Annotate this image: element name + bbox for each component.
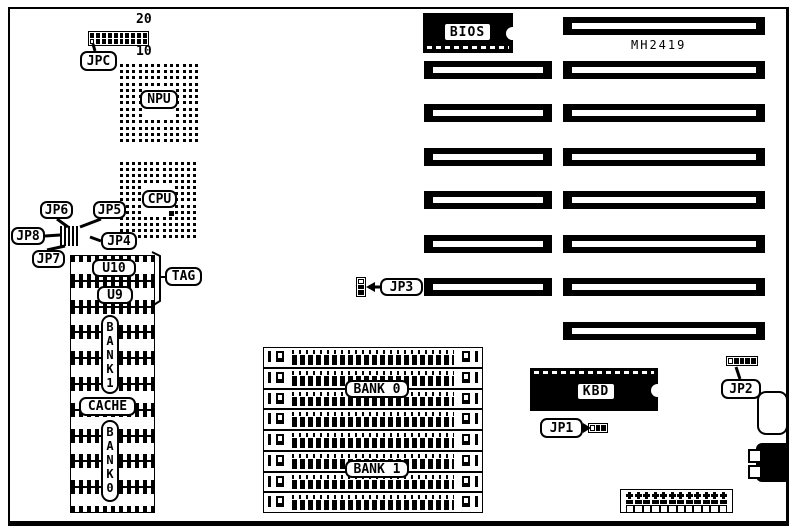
bios-label: BIOS bbox=[444, 23, 491, 41]
pin bbox=[120, 39, 124, 44]
socket-pin bbox=[195, 83, 198, 86]
socket-pin bbox=[163, 235, 166, 238]
repeated-element bbox=[263, 347, 483, 368]
socket-pin bbox=[183, 83, 186, 86]
socket-pin bbox=[181, 174, 184, 177]
socket-pin bbox=[132, 139, 135, 142]
repeated-element bbox=[711, 492, 718, 499]
socket-pin bbox=[189, 76, 192, 79]
jp3-callout: JP3 bbox=[380, 278, 423, 296]
socket-pin bbox=[126, 223, 129, 226]
repeated-element bbox=[677, 505, 685, 513]
socket-pin bbox=[183, 127, 186, 130]
socket-pin bbox=[169, 223, 172, 226]
socket-pin bbox=[164, 120, 167, 123]
socket-pin bbox=[144, 168, 147, 171]
power-pin-row-square bbox=[626, 505, 727, 513]
jpc-pin10-label: 10 bbox=[136, 45, 152, 58]
socket-pin bbox=[163, 174, 166, 177]
socket-pin bbox=[132, 83, 135, 86]
socket-pin bbox=[175, 235, 178, 238]
socket-pin bbox=[181, 198, 184, 201]
socket-pin bbox=[126, 120, 129, 123]
socket-pin bbox=[120, 101, 123, 104]
socket-pin bbox=[132, 133, 135, 136]
socket-pin bbox=[138, 162, 141, 165]
socket-pin bbox=[120, 162, 123, 165]
repeated-element bbox=[263, 492, 483, 513]
socket-pin bbox=[189, 114, 192, 117]
power-connector bbox=[620, 489, 733, 513]
socket-pin bbox=[170, 70, 173, 73]
pin bbox=[60, 226, 62, 230]
pin bbox=[601, 425, 606, 431]
socket-pin bbox=[193, 229, 196, 232]
repeated-element bbox=[669, 500, 676, 504]
socket-pin bbox=[144, 235, 147, 238]
pin bbox=[68, 238, 70, 242]
socket-pin bbox=[144, 229, 147, 232]
socket-pin bbox=[156, 235, 159, 238]
socket-pin bbox=[120, 192, 123, 195]
jp2-jumper bbox=[726, 356, 758, 366]
socket-pin bbox=[163, 229, 166, 232]
socket-pin bbox=[150, 168, 153, 171]
repeated-element bbox=[424, 235, 552, 253]
pin bbox=[68, 226, 70, 230]
repeated-element bbox=[424, 61, 552, 79]
socket-pin bbox=[138, 205, 141, 208]
socket-pin bbox=[183, 95, 186, 98]
jumper-strip bbox=[72, 226, 74, 246]
socket-pin bbox=[193, 186, 196, 189]
socket-pin bbox=[120, 186, 123, 189]
socket-pin bbox=[187, 198, 190, 201]
repeated-element bbox=[424, 278, 552, 296]
socket-pin bbox=[144, 180, 147, 183]
cache-label: CACHE bbox=[79, 397, 136, 416]
socket-pin bbox=[183, 64, 186, 67]
socket-pin bbox=[169, 174, 172, 177]
socket-pin bbox=[132, 127, 135, 130]
repeated-element bbox=[651, 505, 659, 513]
repeated-element bbox=[563, 191, 765, 209]
socket-pin bbox=[183, 120, 186, 123]
repeated-element bbox=[677, 500, 684, 504]
socket-pin bbox=[157, 70, 160, 73]
pin bbox=[102, 33, 106, 38]
pin bbox=[76, 231, 78, 237]
socket-pin bbox=[156, 217, 159, 220]
socket-pin bbox=[183, 108, 186, 111]
socket-pin bbox=[126, 133, 129, 136]
jp3-jumper bbox=[356, 277, 366, 297]
simm-bank0-label: BANK 0 bbox=[345, 380, 409, 398]
socket-pin bbox=[126, 198, 129, 201]
socket-pin bbox=[120, 168, 123, 171]
socket-pin bbox=[163, 168, 166, 171]
socket-pin bbox=[157, 76, 160, 79]
socket-pin bbox=[145, 83, 148, 86]
socket-pin bbox=[175, 211, 178, 214]
socket-pin bbox=[150, 217, 153, 220]
repeated-element bbox=[563, 278, 765, 296]
socket-pin bbox=[120, 120, 123, 123]
socket-pin bbox=[176, 89, 179, 92]
socket-pin bbox=[126, 101, 129, 104]
kbd-notch bbox=[651, 384, 664, 397]
pin bbox=[64, 231, 66, 237]
repeated-element bbox=[693, 505, 701, 513]
socket-pin bbox=[150, 162, 153, 165]
power-pin-row-dash bbox=[626, 500, 727, 504]
cpu-label: CPU bbox=[142, 190, 177, 208]
jumper-strip bbox=[76, 226, 78, 246]
socket-pin bbox=[176, 114, 179, 117]
socket-pin bbox=[126, 83, 129, 86]
pin bbox=[76, 226, 78, 230]
repeated-element bbox=[720, 500, 727, 504]
socket-pin bbox=[189, 120, 192, 123]
repeated-element bbox=[660, 492, 667, 499]
socket-pin bbox=[176, 127, 179, 130]
jp2-callout: JP2 bbox=[721, 379, 761, 399]
socket-pin bbox=[150, 229, 153, 232]
jp7-callout: JP7 bbox=[32, 250, 65, 268]
socket-pin bbox=[126, 180, 129, 183]
socket-pin bbox=[183, 101, 186, 104]
simm-bank1-label: BANK 1 bbox=[345, 460, 409, 478]
kbd-pins bbox=[534, 371, 654, 374]
socket-pin bbox=[187, 217, 190, 220]
socket-pin bbox=[164, 133, 167, 136]
socket-pin bbox=[175, 180, 178, 183]
socket-pin bbox=[151, 76, 154, 79]
socket-pin bbox=[181, 180, 184, 183]
pin bbox=[751, 358, 756, 364]
pin bbox=[72, 238, 74, 242]
socket-pin bbox=[181, 217, 184, 220]
pin bbox=[740, 358, 745, 364]
socket-pin bbox=[183, 70, 186, 73]
socket-pin bbox=[164, 64, 167, 67]
repeated-element bbox=[643, 500, 650, 504]
socket-pin bbox=[156, 168, 159, 171]
socket-pin bbox=[138, 235, 141, 238]
socket-pin bbox=[195, 70, 198, 73]
jumper-strip bbox=[68, 226, 70, 246]
socket-pin bbox=[195, 64, 198, 67]
socket-pin bbox=[169, 162, 172, 165]
socket-pin bbox=[120, 174, 123, 177]
socket-pin bbox=[181, 162, 184, 165]
socket-pin bbox=[170, 133, 173, 136]
socket-pin bbox=[145, 127, 148, 130]
socket-pin bbox=[139, 133, 142, 136]
repeated-element bbox=[424, 191, 552, 209]
socket-pin bbox=[126, 162, 129, 165]
pin bbox=[72, 226, 74, 230]
socket-pin bbox=[170, 120, 173, 123]
socket-pin bbox=[189, 108, 192, 111]
jpc-callout: JPC bbox=[80, 51, 117, 71]
socket-pin bbox=[175, 162, 178, 165]
socket-pin bbox=[126, 139, 129, 142]
pin bbox=[358, 285, 364, 290]
socket-pin bbox=[187, 211, 190, 214]
socket-pin bbox=[145, 64, 148, 67]
repeated-element bbox=[643, 505, 651, 513]
socket-pin bbox=[138, 198, 141, 201]
socket-pin bbox=[132, 223, 135, 226]
keyboard-connector-pin bbox=[748, 449, 762, 463]
socket-pin bbox=[138, 192, 141, 195]
socket-pin bbox=[126, 108, 129, 111]
socket-pin bbox=[120, 70, 123, 73]
socket-pin bbox=[120, 83, 123, 86]
repeated-element bbox=[703, 500, 710, 504]
socket-pin bbox=[126, 192, 129, 195]
socket-pin bbox=[181, 192, 184, 195]
pin bbox=[131, 33, 135, 38]
socket-pin bbox=[126, 64, 129, 67]
jp5-callout: JP5 bbox=[93, 201, 126, 219]
socket-pin bbox=[139, 114, 142, 117]
repeated-element bbox=[686, 500, 693, 504]
kbd-label: KBD bbox=[577, 383, 615, 400]
jpc-pin20-label: 20 bbox=[136, 13, 152, 26]
socket-pin bbox=[150, 174, 153, 177]
pin bbox=[102, 39, 106, 44]
repeated-element bbox=[563, 322, 765, 340]
socket-pin bbox=[145, 133, 148, 136]
socket-pin bbox=[126, 186, 129, 189]
simm-socket-bank bbox=[263, 347, 483, 513]
jp1-callout: JP1 bbox=[540, 418, 583, 438]
u9-label: U9 bbox=[97, 286, 133, 304]
repeated-element bbox=[424, 148, 552, 166]
socket-pin bbox=[187, 162, 190, 165]
socket-pin bbox=[132, 95, 135, 98]
pin bbox=[108, 39, 112, 44]
socket-pin bbox=[138, 180, 141, 183]
socket-pin bbox=[132, 186, 135, 189]
socket-pin bbox=[169, 180, 172, 183]
socket-pin bbox=[138, 217, 141, 220]
pin bbox=[358, 279, 364, 284]
socket-pin bbox=[176, 133, 179, 136]
socket-pin bbox=[132, 101, 135, 104]
pin bbox=[143, 33, 147, 38]
socket-pin bbox=[138, 229, 141, 232]
socket-pin bbox=[195, 101, 198, 104]
socket-pin bbox=[195, 120, 198, 123]
socket-pin bbox=[195, 108, 198, 111]
socket-pin bbox=[187, 229, 190, 232]
socket-pin bbox=[193, 223, 196, 226]
din-connector-outline bbox=[757, 391, 788, 435]
socket-pin bbox=[175, 168, 178, 171]
socket-pin bbox=[163, 217, 166, 220]
socket-pin bbox=[138, 186, 141, 189]
repeated-element bbox=[635, 500, 642, 504]
pin bbox=[76, 242, 78, 246]
power-pin-row-plus bbox=[626, 492, 727, 499]
bank1-cache-label: BANK 1 bbox=[101, 315, 119, 394]
socket-pin bbox=[139, 70, 142, 73]
socket-pin bbox=[132, 192, 135, 195]
socket-pin bbox=[195, 76, 198, 79]
socket-pin bbox=[120, 64, 123, 67]
socket-pin bbox=[151, 139, 154, 142]
socket-pin bbox=[126, 217, 129, 220]
socket-pin bbox=[132, 211, 135, 214]
board-model-label: MH2419 bbox=[631, 39, 686, 51]
socket-pin bbox=[175, 223, 178, 226]
socket-pin bbox=[120, 114, 123, 117]
pin bbox=[596, 425, 601, 431]
socket-pin bbox=[193, 174, 196, 177]
pin bbox=[60, 231, 62, 237]
jp8-callout: JP8 bbox=[11, 227, 45, 245]
socket-pin bbox=[126, 205, 129, 208]
socket-pin bbox=[132, 114, 135, 117]
socket-pin bbox=[175, 186, 178, 189]
jumper-block-jp4-jp8 bbox=[60, 226, 91, 246]
motherboard-diagram: 20 10 JPC NPU CPU JP6 JP5 JP8 JP4 JP7 U1… bbox=[0, 0, 794, 530]
socket-pin bbox=[132, 120, 135, 123]
socket-pin bbox=[126, 114, 129, 117]
repeated-element bbox=[635, 492, 642, 499]
socket-pin bbox=[138, 174, 141, 177]
socket-pin bbox=[157, 133, 160, 136]
pin bbox=[60, 238, 62, 242]
repeated-element bbox=[626, 500, 633, 504]
socket-pin bbox=[187, 168, 190, 171]
socket-pin bbox=[169, 168, 172, 171]
pin bbox=[96, 39, 100, 44]
socket-pin bbox=[132, 76, 135, 79]
pin bbox=[131, 39, 135, 44]
pin bbox=[90, 33, 94, 38]
jp6-callout: JP6 bbox=[40, 201, 73, 219]
pin bbox=[745, 358, 750, 364]
socket-pin bbox=[132, 89, 135, 92]
repeated-element bbox=[702, 505, 710, 513]
jp4-callout: JP4 bbox=[101, 232, 137, 250]
socket-pin bbox=[164, 139, 167, 142]
socket-pin bbox=[144, 223, 147, 226]
socket-pin bbox=[120, 127, 123, 130]
socket-pin bbox=[175, 229, 178, 232]
socket-pin bbox=[151, 127, 154, 130]
socket-pin bbox=[183, 76, 186, 79]
socket-pin bbox=[120, 139, 123, 142]
socket-pin bbox=[164, 127, 167, 130]
pin bbox=[72, 242, 74, 246]
repeated-element bbox=[668, 505, 676, 513]
repeated-element bbox=[563, 104, 765, 122]
pin bbox=[114, 39, 118, 44]
jp1-jumper bbox=[588, 423, 608, 433]
socket-pin bbox=[150, 235, 153, 238]
pin bbox=[120, 33, 124, 38]
socket-pin bbox=[144, 162, 147, 165]
socket-pin bbox=[120, 95, 123, 98]
socket-pin bbox=[189, 139, 192, 142]
socket-pin bbox=[157, 127, 160, 130]
bank0-cache-label: BANK 0 bbox=[101, 420, 119, 502]
socket-pin bbox=[183, 133, 186, 136]
socket-pin bbox=[170, 127, 173, 130]
repeated-element bbox=[563, 17, 765, 35]
socket-pin bbox=[181, 168, 184, 171]
repeated-element bbox=[626, 505, 634, 513]
socket-pin bbox=[189, 83, 192, 86]
socket-pin bbox=[120, 223, 123, 226]
socket-pin bbox=[195, 127, 198, 130]
socket-pin bbox=[156, 180, 159, 183]
socket-pin bbox=[169, 217, 172, 220]
pin bbox=[358, 290, 364, 295]
socket-pin bbox=[181, 205, 184, 208]
socket-pin bbox=[193, 211, 196, 214]
socket-pin bbox=[170, 83, 173, 86]
socket-pin bbox=[150, 180, 153, 183]
repeated-element bbox=[652, 492, 659, 499]
repeated-element bbox=[703, 492, 710, 499]
pin bbox=[137, 33, 141, 38]
socket-pin bbox=[126, 127, 129, 130]
repeated-element bbox=[720, 492, 727, 499]
socket-pin bbox=[181, 229, 184, 232]
pin bbox=[64, 242, 66, 246]
pin bbox=[68, 231, 70, 237]
socket-pin bbox=[163, 223, 166, 226]
socket-pin bbox=[145, 76, 148, 79]
socket-pin bbox=[126, 168, 129, 171]
pin bbox=[125, 39, 129, 44]
socket-pin bbox=[132, 174, 135, 177]
socket-pin bbox=[195, 133, 198, 136]
pin bbox=[60, 242, 62, 246]
socket-pin bbox=[193, 192, 196, 195]
pin bbox=[728, 358, 733, 364]
socket-pin bbox=[193, 198, 196, 201]
socket-pin bbox=[187, 223, 190, 226]
socket-pin bbox=[120, 89, 123, 92]
socket-pin bbox=[132, 180, 135, 183]
socket-pin bbox=[189, 89, 192, 92]
repeated-element bbox=[634, 505, 642, 513]
socket-pin bbox=[139, 83, 142, 86]
pin bbox=[125, 33, 129, 38]
pin bbox=[64, 226, 66, 230]
socket-pin bbox=[193, 162, 196, 165]
socket-pin bbox=[189, 70, 192, 73]
repeated-element bbox=[643, 492, 650, 499]
socket-pin bbox=[156, 174, 159, 177]
socket-pin bbox=[187, 192, 190, 195]
repeated-element bbox=[685, 505, 693, 513]
socket-pin bbox=[144, 174, 147, 177]
socket-pin bbox=[163, 162, 166, 165]
socket-pin bbox=[176, 120, 179, 123]
socket-pin bbox=[132, 198, 135, 201]
socket-pin bbox=[132, 70, 135, 73]
jumper-strip bbox=[64, 226, 66, 246]
repeated-element bbox=[424, 104, 552, 122]
